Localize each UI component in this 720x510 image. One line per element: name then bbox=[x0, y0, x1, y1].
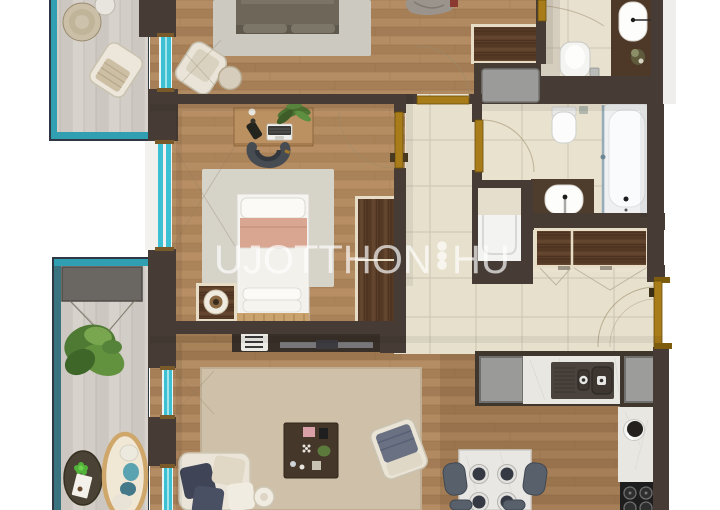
svg-text:UJOTTHON: UJOTTHON bbox=[214, 238, 432, 282]
svg-text:HU: HU bbox=[452, 238, 510, 282]
